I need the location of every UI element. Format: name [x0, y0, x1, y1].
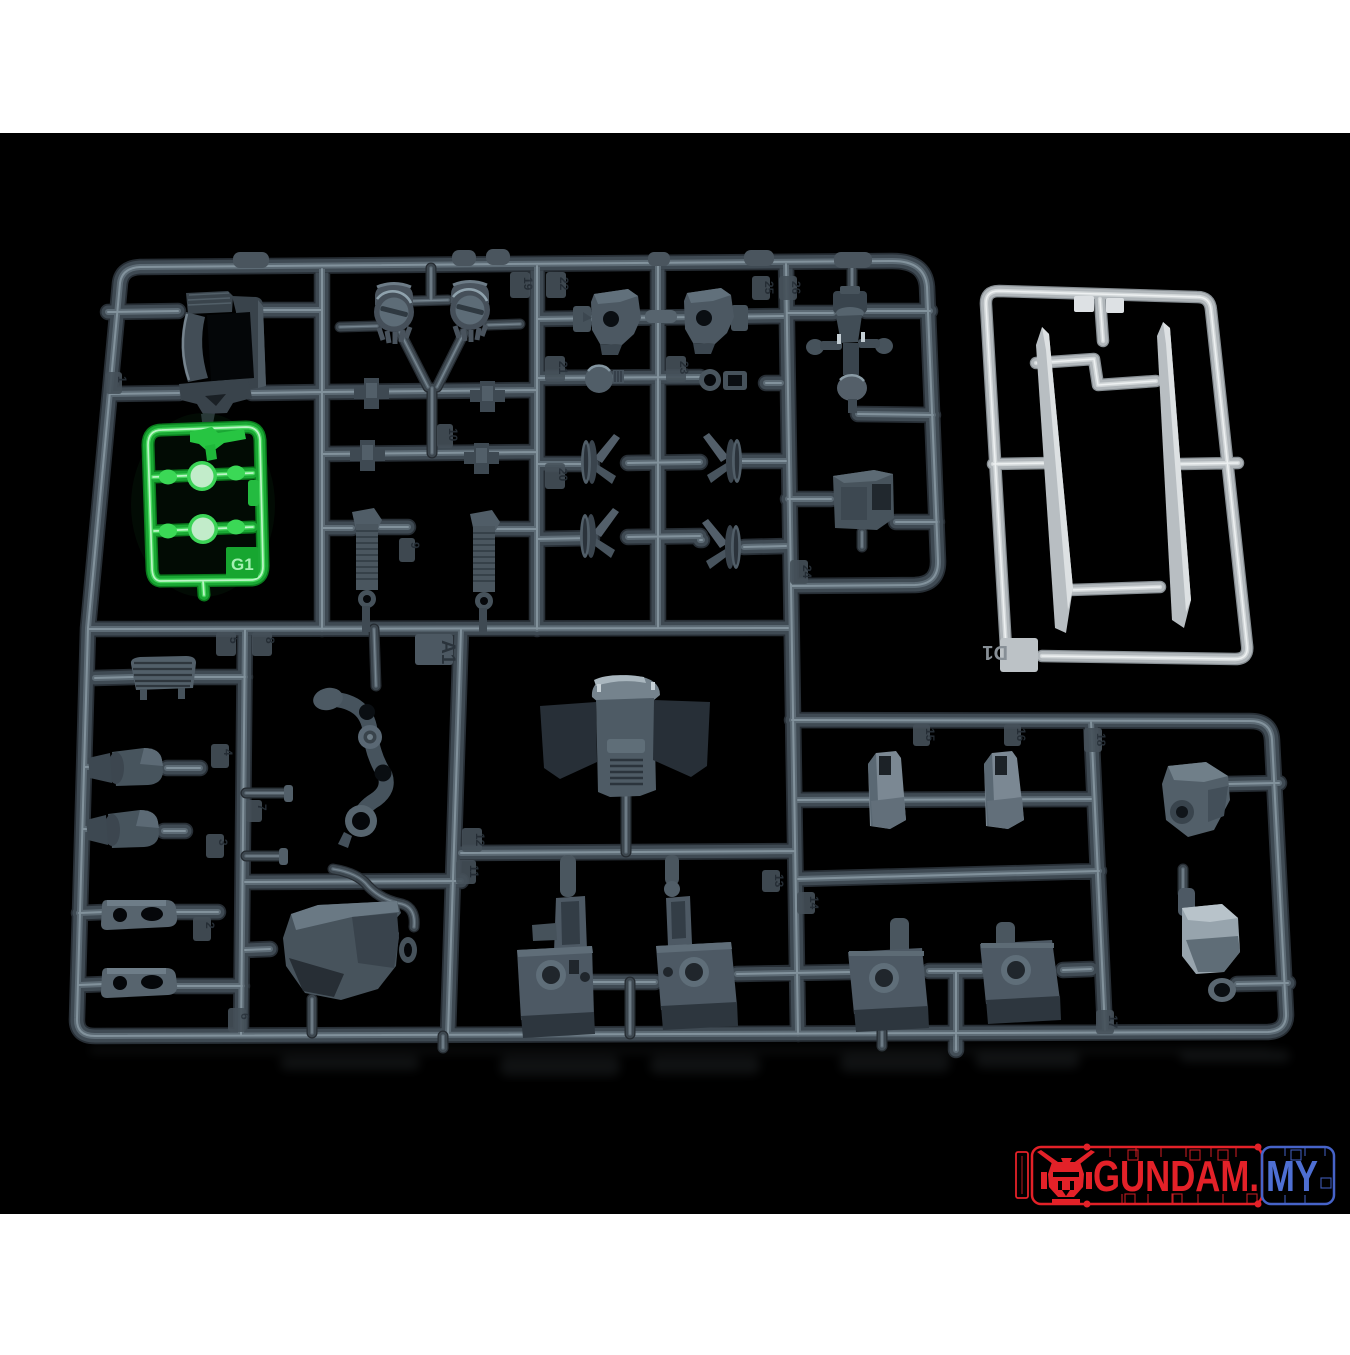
svg-text:MY: MY — [1266, 1152, 1318, 1201]
svg-text:20: 20 — [556, 468, 570, 482]
svg-text:17: 17 — [1106, 1015, 1120, 1029]
svg-text:12: 12 — [473, 833, 487, 847]
svg-text:4: 4 — [221, 749, 235, 756]
svg-text:25: 25 — [762, 281, 776, 295]
svg-text:G1: G1 — [231, 555, 254, 574]
svg-text:9: 9 — [408, 542, 422, 549]
svg-text:3: 3 — [216, 839, 230, 846]
svg-text:13: 13 — [772, 874, 786, 888]
svg-text:26: 26 — [789, 281, 803, 295]
svg-text:21: 21 — [556, 361, 570, 375]
svg-text:2: 2 — [203, 922, 217, 929]
svg-text:24: 24 — [800, 565, 814, 579]
svg-text:6: 6 — [238, 1013, 252, 1020]
svg-text:14: 14 — [807, 896, 821, 910]
svg-text:8: 8 — [263, 637, 277, 644]
svg-text:16: 16 — [1014, 728, 1028, 742]
svg-text:D1: D1 — [982, 641, 1008, 663]
svg-text:A1: A1 — [437, 640, 458, 665]
svg-text:1: 1 — [115, 376, 129, 383]
svg-text:22: 22 — [557, 277, 571, 291]
svg-text:7: 7 — [255, 804, 269, 811]
svg-text:15: 15 — [923, 728, 937, 742]
svg-text:5: 5 — [227, 637, 241, 644]
svg-text:18: 18 — [1094, 733, 1108, 747]
svg-text:11: 11 — [467, 865, 481, 878]
svg-text:23: 23 — [677, 361, 691, 375]
svg-text:19: 19 — [521, 277, 535, 291]
svg-text:10: 10 — [446, 428, 460, 442]
